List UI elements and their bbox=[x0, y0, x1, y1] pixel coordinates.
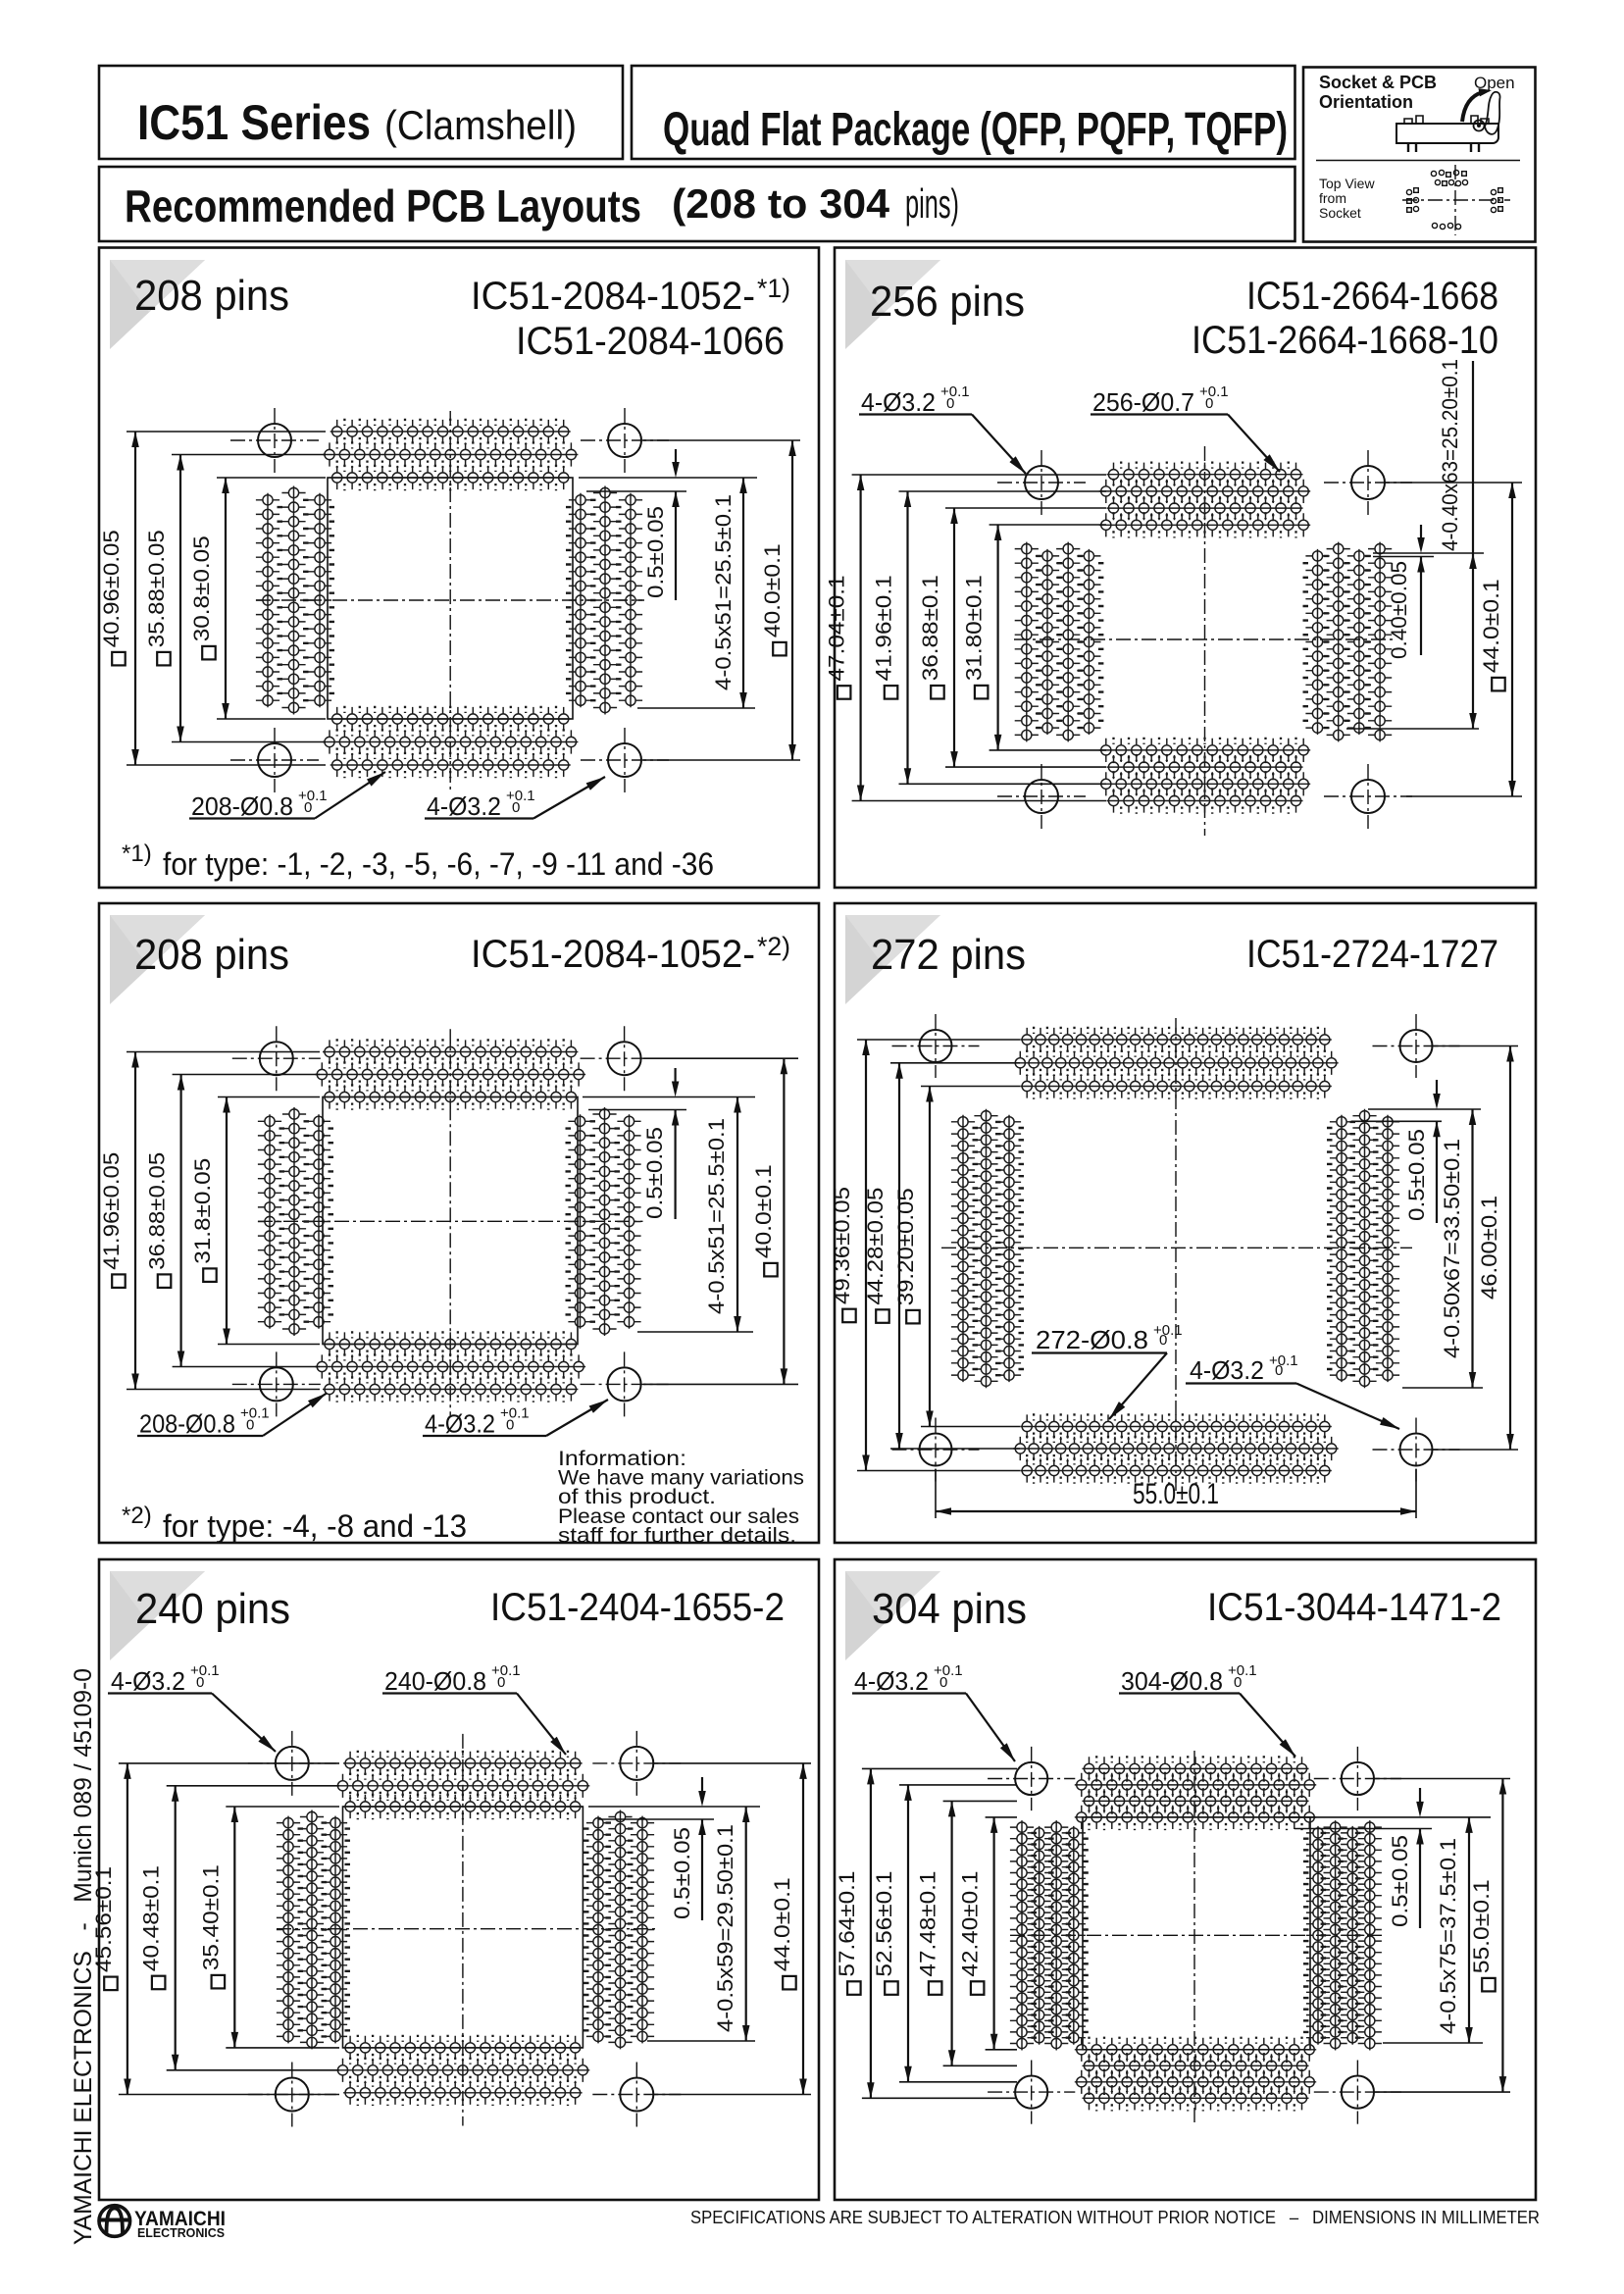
svg-text:256 pins: 256 pins bbox=[870, 278, 1025, 326]
svg-text:0.5±0.05: 0.5±0.05 bbox=[670, 1827, 694, 1919]
svg-text:+0.1: +0.1 bbox=[934, 1662, 963, 1679]
svg-text:36.88±0.05: 36.88±0.05 bbox=[145, 1152, 170, 1270]
svg-text:SPECIFICATIONS ARE SUBJECT TO: SPECIFICATIONS ARE SUBJECT TO ALTERATION… bbox=[690, 2207, 1540, 2227]
svg-text:0.5±0.05: 0.5±0.05 bbox=[1388, 1835, 1412, 1927]
svg-text:208-Ø0.8: 208-Ø0.8 bbox=[191, 791, 293, 821]
svg-text:208 pins: 208 pins bbox=[134, 272, 289, 320]
svg-text:40.0±0.1: 40.0±0.1 bbox=[751, 1164, 776, 1258]
svg-text:47.04±0.1: 47.04±0.1 bbox=[825, 576, 849, 682]
svg-text:+0.1: +0.1 bbox=[1153, 1322, 1183, 1339]
svg-text:+0.1: +0.1 bbox=[298, 788, 328, 804]
svg-text:0: 0 bbox=[497, 1674, 505, 1691]
svg-text:40.0±0.1: 40.0±0.1 bbox=[760, 543, 785, 637]
svg-text:+0.1: +0.1 bbox=[1228, 1662, 1257, 1679]
svg-text:0: 0 bbox=[246, 1417, 254, 1434]
svg-text:Top View: Top View bbox=[1319, 176, 1375, 191]
svg-text:4-0.5x51=25.5±0.1: 4-0.5x51=25.5±0.1 bbox=[704, 1118, 729, 1314]
svg-text:4-Ø3.2: 4-Ø3.2 bbox=[854, 1666, 929, 1696]
svg-text:0: 0 bbox=[1205, 395, 1213, 412]
svg-text:*1): *1) bbox=[757, 274, 790, 303]
svg-text:Quad Flat Package (QFP, PQFP,: Quad Flat Package (QFP, PQFP, TQFP) bbox=[663, 104, 1288, 156]
svg-text:4-0.5x75=37.5±0.1: 4-0.5x75=37.5±0.1 bbox=[1436, 1838, 1460, 2034]
svg-text:*1): *1) bbox=[122, 841, 152, 867]
svg-text:IC51-2084-1066: IC51-2084-1066 bbox=[516, 320, 785, 363]
svg-text:30.8±0.05: 30.8±0.05 bbox=[189, 535, 214, 641]
svg-text:4-Ø3.2: 4-Ø3.2 bbox=[425, 1409, 495, 1439]
svg-text:+0.1: +0.1 bbox=[1269, 1352, 1298, 1369]
svg-text:49.36±0.05: 49.36±0.05 bbox=[830, 1187, 854, 1304]
svg-text:for type: -1, -2, -3, -5, -6,: for type: -1, -2, -3, -5, -6, -7, -9 -11… bbox=[163, 846, 714, 882]
svg-text:4-Ø3.2: 4-Ø3.2 bbox=[111, 1666, 185, 1696]
svg-text:0: 0 bbox=[1159, 1332, 1167, 1349]
svg-text:+0.1: +0.1 bbox=[1199, 383, 1229, 400]
svg-text:0.5±0.05: 0.5±0.05 bbox=[642, 1127, 667, 1219]
svg-text:4-Ø3.2: 4-Ø3.2 bbox=[1190, 1355, 1264, 1385]
svg-text:46.00±0.1: 46.00±0.1 bbox=[1477, 1196, 1501, 1300]
svg-text:*2): *2) bbox=[757, 932, 790, 961]
svg-text:+0.1: +0.1 bbox=[190, 1662, 220, 1679]
svg-text:(208 to 304: (208 to 304 bbox=[672, 180, 890, 227]
svg-text:IC51-3044-1471-2: IC51-3044-1471-2 bbox=[1207, 1586, 1501, 1629]
svg-text:IC51-2404-1655-2: IC51-2404-1655-2 bbox=[490, 1586, 785, 1629]
svg-text:240-Ø0.8: 240-Ø0.8 bbox=[384, 1666, 486, 1696]
svg-text:55.0±0.1: 55.0±0.1 bbox=[1469, 1879, 1494, 1973]
svg-text:IC51 Series: IC51 Series bbox=[137, 95, 371, 150]
svg-text:240 pins: 240 pins bbox=[135, 1585, 290, 1633]
svg-text:IC51-2084-1052-: IC51-2084-1052- bbox=[471, 933, 755, 976]
svg-text:from: from bbox=[1319, 190, 1346, 206]
svg-text:44.0±0.1: 44.0±0.1 bbox=[1479, 579, 1503, 673]
svg-text:304-Ø0.8: 304-Ø0.8 bbox=[1121, 1666, 1223, 1696]
svg-text:(Clamshell): (Clamshell) bbox=[384, 102, 577, 148]
svg-text:0: 0 bbox=[1234, 1674, 1242, 1691]
svg-text:Orientation: Orientation bbox=[1319, 92, 1413, 112]
svg-text:52.56±0.1: 52.56±0.1 bbox=[872, 1871, 896, 1977]
svg-text:41.96±0.1: 41.96±0.1 bbox=[872, 575, 896, 681]
svg-text:+0.1: +0.1 bbox=[940, 383, 970, 400]
svg-text:4-Ø3.2: 4-Ø3.2 bbox=[427, 791, 501, 821]
svg-text:Socket: Socket bbox=[1319, 205, 1361, 221]
svg-text:0.40±0.05: 0.40±0.05 bbox=[1387, 561, 1411, 659]
svg-text:40.48±0.1: 40.48±0.1 bbox=[139, 1865, 164, 1971]
svg-text:0: 0 bbox=[512, 799, 520, 816]
svg-text:+0.1: +0.1 bbox=[500, 1405, 530, 1422]
svg-text:57.64±0.1: 57.64±0.1 bbox=[835, 1871, 859, 1977]
svg-text:31.80±0.1: 31.80±0.1 bbox=[962, 575, 987, 681]
svg-text:IC51-2664-1668-10: IC51-2664-1668-10 bbox=[1192, 319, 1498, 362]
svg-text:0.5±0.05: 0.5±0.05 bbox=[1404, 1129, 1429, 1221]
svg-text:4-0.5x51=25.5±0.1: 4-0.5x51=25.5±0.1 bbox=[711, 494, 736, 690]
svg-text:Socket & PCB: Socket & PCB bbox=[1319, 73, 1437, 92]
svg-text:0: 0 bbox=[939, 1674, 947, 1691]
svg-text:4-0.50x67=33.50±0.1: 4-0.50x67=33.50±0.1 bbox=[1440, 1139, 1464, 1358]
svg-text:35.40±0.1: 35.40±0.1 bbox=[198, 1864, 223, 1970]
svg-text:+0.1: +0.1 bbox=[491, 1662, 521, 1679]
svg-text:304 pins: 304 pins bbox=[872, 1585, 1027, 1633]
svg-text:staff for further details.: staff for further details. bbox=[558, 1524, 796, 1547]
svg-text:4-Ø3.2: 4-Ø3.2 bbox=[861, 387, 936, 417]
svg-text:35.88±0.05: 35.88±0.05 bbox=[144, 530, 169, 647]
svg-text:0.5±0.05: 0.5±0.05 bbox=[643, 506, 668, 598]
svg-text:45.56±0.1: 45.56±0.1 bbox=[91, 1866, 116, 1972]
svg-text:256-Ø0.7: 256-Ø0.7 bbox=[1092, 387, 1194, 417]
svg-text:39.20±0.05: 39.20±0.05 bbox=[893, 1188, 918, 1305]
svg-text:44.28±0.05: 44.28±0.05 bbox=[863, 1188, 888, 1305]
svg-text:+0.1: +0.1 bbox=[506, 788, 535, 804]
svg-text:pins): pins) bbox=[898, 180, 959, 227]
svg-text:36.88±0.1: 36.88±0.1 bbox=[918, 575, 942, 681]
svg-text:0: 0 bbox=[1275, 1362, 1283, 1379]
svg-text:IC51-2724-1727: IC51-2724-1727 bbox=[1246, 933, 1498, 976]
svg-text:for type: -4, -8 and -13: for type: -4, -8 and -13 bbox=[163, 1508, 467, 1544]
svg-text:41.96±0.05: 41.96±0.05 bbox=[99, 1152, 124, 1270]
svg-text:42.40±0.1: 42.40±0.1 bbox=[958, 1871, 983, 1977]
svg-text:0: 0 bbox=[946, 395, 954, 412]
svg-text:0: 0 bbox=[506, 1417, 514, 1434]
svg-text:0: 0 bbox=[196, 1674, 204, 1691]
svg-text:+0.1: +0.1 bbox=[240, 1405, 270, 1422]
svg-text:IC51-2664-1668: IC51-2664-1668 bbox=[1246, 275, 1498, 318]
svg-text:44.0±0.1: 44.0±0.1 bbox=[770, 1877, 794, 1971]
svg-text:IC51-2084-1052-: IC51-2084-1052- bbox=[471, 275, 755, 318]
svg-text:4-0.40x63=25.20±0.1: 4-0.40x63=25.20±0.1 bbox=[1438, 359, 1462, 551]
svg-text:272 pins: 272 pins bbox=[871, 931, 1026, 979]
svg-text:208-Ø0.8: 208-Ø0.8 bbox=[139, 1409, 235, 1439]
svg-text:208 pins: 208 pins bbox=[134, 931, 289, 979]
svg-text:272-Ø0.8: 272-Ø0.8 bbox=[1036, 1325, 1148, 1354]
svg-text:55.0±0.1: 55.0±0.1 bbox=[1133, 1478, 1219, 1510]
svg-text:Recommended PCB Layouts: Recommended PCB Layouts bbox=[125, 180, 641, 231]
svg-text:0: 0 bbox=[304, 799, 312, 816]
svg-text:*2): *2) bbox=[122, 1503, 152, 1529]
svg-text:4-0.5x59=29.50±0.1: 4-0.5x59=29.50±0.1 bbox=[713, 1824, 737, 2032]
svg-text:ELECTRONICS: ELECTRONICS bbox=[137, 2226, 225, 2240]
svg-text:40.96±0.05: 40.96±0.05 bbox=[99, 530, 124, 647]
svg-text:31.8±0.05: 31.8±0.05 bbox=[190, 1158, 215, 1264]
svg-text:47.48±0.1: 47.48±0.1 bbox=[916, 1871, 940, 1977]
